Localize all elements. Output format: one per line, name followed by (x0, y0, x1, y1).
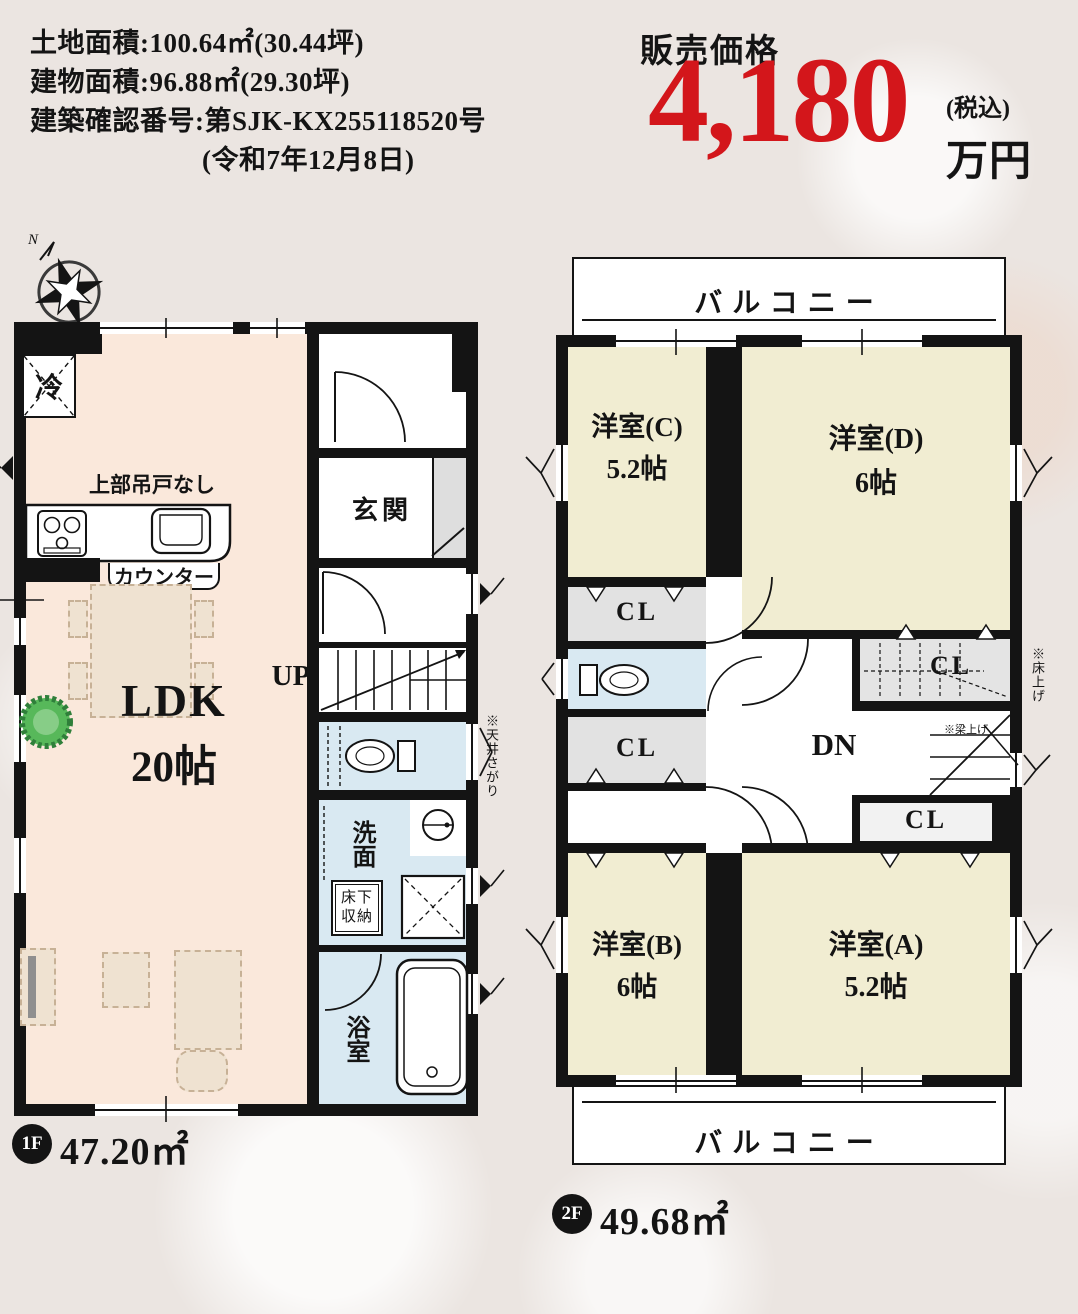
floor-raised-note: ※床上げ (1028, 647, 1047, 751)
floor1-linework (14, 322, 478, 1116)
ceiling-note: ※天井さがり (482, 714, 501, 830)
floorplan-1f: 冷 上部吊戸なし カウンター LDK 20帖 玄関 UP 洗面 床下収納 洗 浴… (14, 322, 478, 1116)
floorplan-2f: バルコニー 洋室(C) 5.2帖 洋室(D) 6帖 洋室(B) 6帖 洋室(A)… (556, 257, 1022, 1165)
flyer-root: { "colors": { "price_red": "#D3161B", "w… (0, 0, 1078, 1314)
price-value: 4,180 (648, 34, 908, 168)
compass-rose-icon (14, 234, 114, 334)
property-info: 土地面積:100.64㎡(30.44坪) 建物面積:96.88㎡(29.30坪)… (30, 24, 486, 180)
floor2-badge: 2F (552, 1194, 592, 1234)
floor2-linework (556, 257, 1022, 1165)
floor1-area: 47.20㎡ (60, 1120, 190, 1175)
compass: N (14, 234, 114, 334)
land-area-text: 土地面積:100.64㎡(30.44坪) (30, 24, 486, 63)
price-side: (税込) 万円 (946, 88, 1056, 188)
confirmation-number-text: 建築確認番号:第SJK-KX255118520号 (30, 102, 486, 141)
floor1-badge: 1F (12, 1124, 52, 1164)
floor2-area: 49.68㎡ (600, 1190, 730, 1245)
building-area-text: 建物面積:96.88㎡(29.30坪) (30, 63, 486, 102)
compass-north-label: N (28, 232, 38, 249)
price-unit: 万円 (946, 127, 1056, 188)
confirmation-date-text: (令和7年12月8日) (30, 141, 486, 180)
price-tax-note: (税込) (946, 88, 1056, 123)
